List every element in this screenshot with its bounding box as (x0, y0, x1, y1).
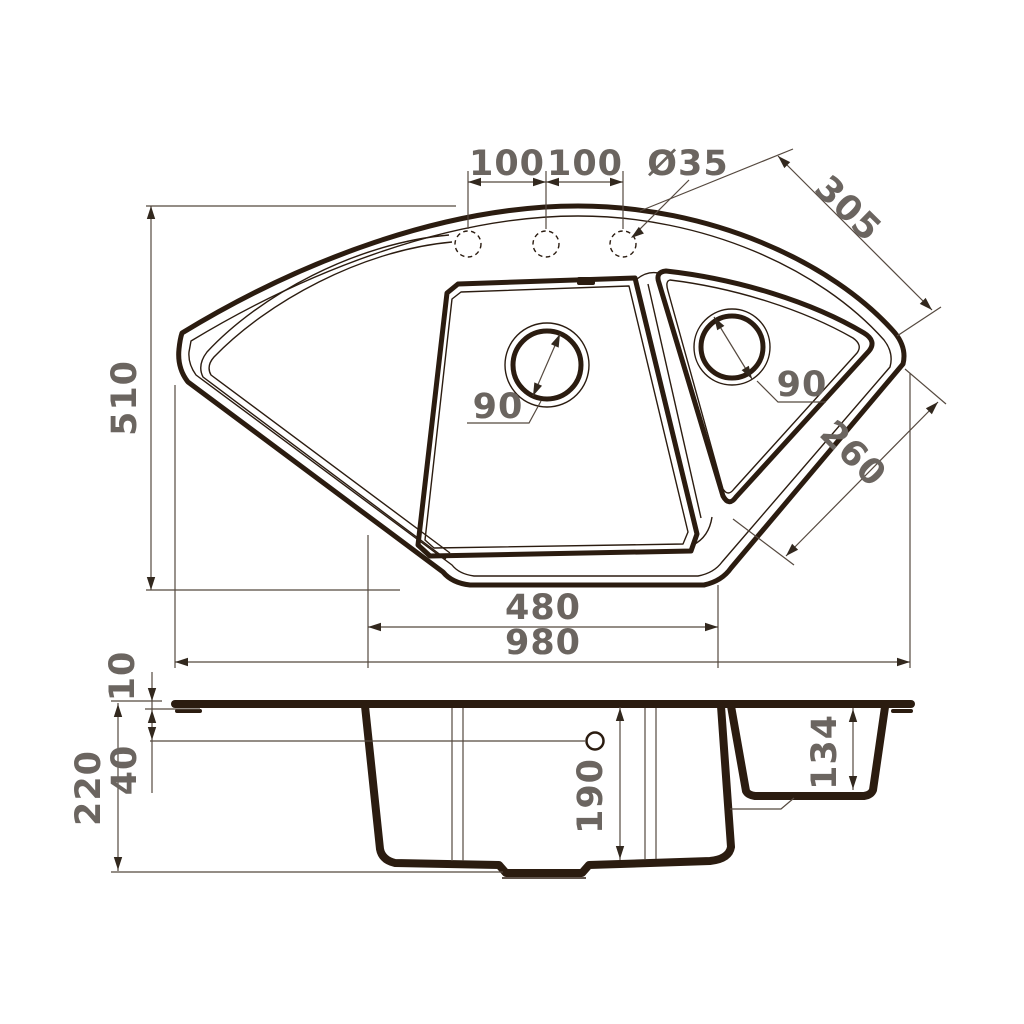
tap-hole-1 (455, 231, 481, 257)
top-view: 100 100 Ø35 305 260 (105, 144, 946, 668)
side-main-bowl (365, 706, 731, 873)
sink-drawing: 100 100 Ø35 305 260 (0, 0, 1024, 1024)
wing-band-inner (209, 242, 452, 553)
dim-label-depth: 510 (105, 360, 145, 436)
dim-label-main-bowl-depth: 190 (571, 758, 611, 834)
dim-label-overall-width: 980 (505, 623, 581, 663)
dim-label-overall-height: 220 (69, 750, 109, 826)
tap-hole-2 (533, 231, 559, 257)
technical-drawing-page: 100 100 Ø35 305 260 (0, 0, 1024, 1024)
dimension-main-bowl-depth: 190 (571, 707, 624, 860)
dim-label-tap-spacing-left: 100 (469, 144, 545, 184)
overflow-hole (587, 733, 604, 750)
dim-label-tap-spacing-right: 100 (547, 144, 623, 184)
dim-label-rim-height: 10 (103, 651, 143, 702)
dim-label-main-drain: 90 (473, 387, 524, 427)
wing-band-outer (201, 235, 449, 559)
main-bowl-outline (418, 278, 697, 556)
divider-top-saddle (637, 273, 658, 279)
dim-label-top-right-edge: 305 (807, 168, 889, 250)
main-bowl-overflow-notch (577, 277, 595, 285)
dim-label-overflow-offset: 40 (105, 745, 145, 796)
tap-hole-3 (610, 231, 636, 257)
dim-label-tap-diameter: Ø35 (647, 144, 728, 184)
dim-label-right-bowl-depth: 134 (805, 714, 845, 790)
side-view: 220 10 40 190 134 (69, 651, 911, 878)
dim-label-bowl-width: 480 (505, 588, 581, 628)
dimension-right-bowl-depth: 134 (805, 708, 857, 790)
tap-holes (455, 231, 636, 257)
dimension-depth: 510 (105, 206, 456, 590)
dim-label-right-drain: 90 (777, 365, 828, 405)
